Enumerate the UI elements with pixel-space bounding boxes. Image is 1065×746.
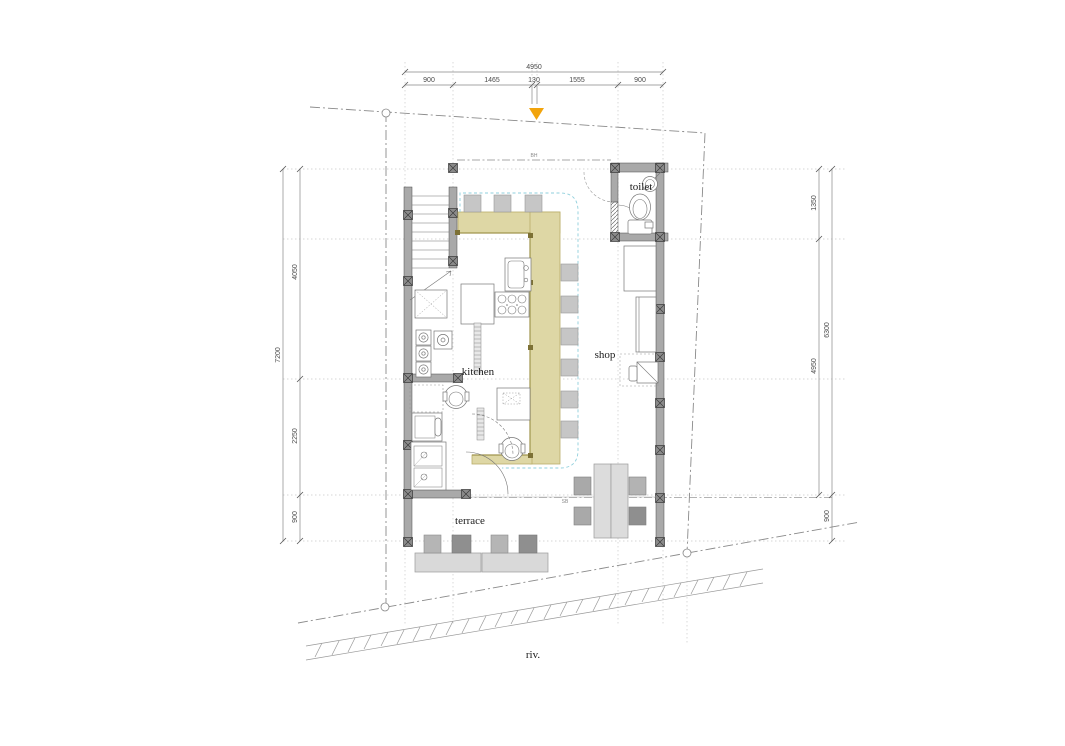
bench-seat	[519, 535, 537, 553]
gas-burner	[416, 362, 431, 377]
wall-post	[611, 233, 620, 242]
bar-stool	[561, 264, 578, 281]
wall-post	[656, 494, 665, 503]
kitchen-label: kitchen	[462, 366, 495, 378]
entry-marker-icon	[529, 108, 544, 120]
boundary-marker	[381, 603, 389, 611]
gas-burner	[416, 346, 431, 361]
dim-top-seg: 900	[423, 77, 435, 84]
dim-top-total: 4950	[526, 64, 542, 71]
counter-east-bar	[530, 212, 560, 464]
toilet-door	[611, 202, 618, 233]
wall-post	[656, 538, 665, 547]
bench-seat	[491, 535, 508, 553]
dim-left-seg: 2250	[292, 428, 299, 444]
terrace: terrace	[415, 515, 548, 572]
wall-post	[449, 209, 458, 218]
dim-top-seg: 130	[528, 77, 540, 84]
shop-label: shop	[595, 349, 616, 361]
dim-top-seg: 1555	[569, 77, 585, 84]
gas-burner	[434, 331, 452, 349]
toilet-fixture	[630, 194, 651, 220]
wall-post	[656, 399, 665, 408]
six-burner-stove	[495, 292, 529, 317]
bar-stool	[561, 296, 578, 313]
dim-top-seg: 1465	[484, 77, 500, 84]
bar-stool	[464, 195, 481, 212]
dim-right-overall: 6300	[824, 322, 831, 338]
floor-plan-drawing: riv. 4950 900 1465 130 1555 900 7200 405…	[0, 0, 1065, 746]
bench	[482, 553, 548, 572]
chair	[629, 477, 646, 495]
bar-stool	[494, 195, 511, 212]
toilet-room: toilet	[584, 169, 664, 234]
boundary-marker	[382, 109, 390, 117]
equipment-outline	[410, 385, 443, 412]
wall-post	[656, 164, 665, 173]
bar-stool	[525, 195, 542, 212]
wall-post	[449, 164, 458, 173]
grid-lines	[283, 62, 845, 645]
dim-left-seg: 4050	[292, 264, 299, 280]
bar-stool	[561, 328, 578, 345]
toilet-label: toilet	[630, 181, 653, 193]
wall-post	[611, 164, 620, 173]
counter-south-bar	[472, 455, 532, 464]
stand-mixer	[443, 386, 469, 409]
refrigerator	[412, 413, 442, 441]
table	[594, 464, 611, 538]
wall-post	[404, 211, 413, 220]
wall-toilet-west	[611, 172, 618, 202]
shop-fixtures: shop	[595, 246, 658, 386]
bar-stool	[561, 359, 578, 376]
kitchen-sink	[505, 258, 531, 291]
bench-seat	[424, 535, 441, 553]
chair	[574, 507, 591, 525]
wall-post	[404, 277, 413, 286]
dimension-left: 7200 4050 2250 900	[275, 166, 303, 544]
dimension-right: 1350 4950 6300 900	[811, 166, 835, 544]
shelf-ladder	[477, 408, 484, 440]
wall-post	[404, 538, 413, 547]
bar-stool	[561, 421, 578, 438]
sb-label: SB	[562, 499, 569, 505]
dim-top-seg: 900	[634, 77, 646, 84]
dim-right-seg: 1350	[811, 195, 818, 211]
stairs	[410, 196, 451, 300]
gas-burner	[416, 330, 431, 345]
shop-tables	[574, 464, 646, 538]
bench	[415, 553, 481, 572]
terrace-label: terrace	[455, 515, 485, 527]
wall-post	[404, 374, 413, 383]
entry-door-swing	[584, 172, 614, 202]
work-table	[461, 284, 494, 324]
dim-right-seg: 4950	[811, 358, 818, 374]
river-label: riv.	[526, 649, 541, 661]
wall-stair	[449, 187, 457, 268]
bar-stool	[561, 391, 578, 408]
dim-left-total: 7200	[275, 347, 282, 363]
bh-label: BH	[531, 153, 538, 159]
bench-seat	[452, 535, 471, 553]
river-embankment	[306, 569, 763, 660]
site-boundary	[298, 107, 860, 623]
wall-post	[449, 257, 458, 266]
wall-post	[656, 305, 665, 314]
work-table	[497, 388, 530, 420]
wall-post	[656, 446, 665, 455]
wall-post	[656, 233, 665, 242]
chair	[629, 507, 646, 525]
wall-kitchen-south	[404, 490, 470, 498]
dim-right-bottom: 900	[824, 510, 831, 522]
chair	[574, 477, 591, 495]
dim-left-seg: 900	[292, 511, 299, 523]
table	[611, 464, 628, 538]
display-shelf	[624, 246, 656, 291]
wall-post	[462, 490, 471, 499]
floor-plan-page: riv. 4950 900 1465 130 1555 900 7200 405…	[0, 0, 1065, 746]
facade-opening: BH	[457, 153, 611, 160]
boundary-marker	[683, 549, 691, 557]
dimension-top: 4950 900 1465 130 1555 900	[402, 64, 666, 120]
wall-post	[404, 490, 413, 499]
double-sink	[411, 442, 446, 490]
counter	[455, 193, 578, 468]
